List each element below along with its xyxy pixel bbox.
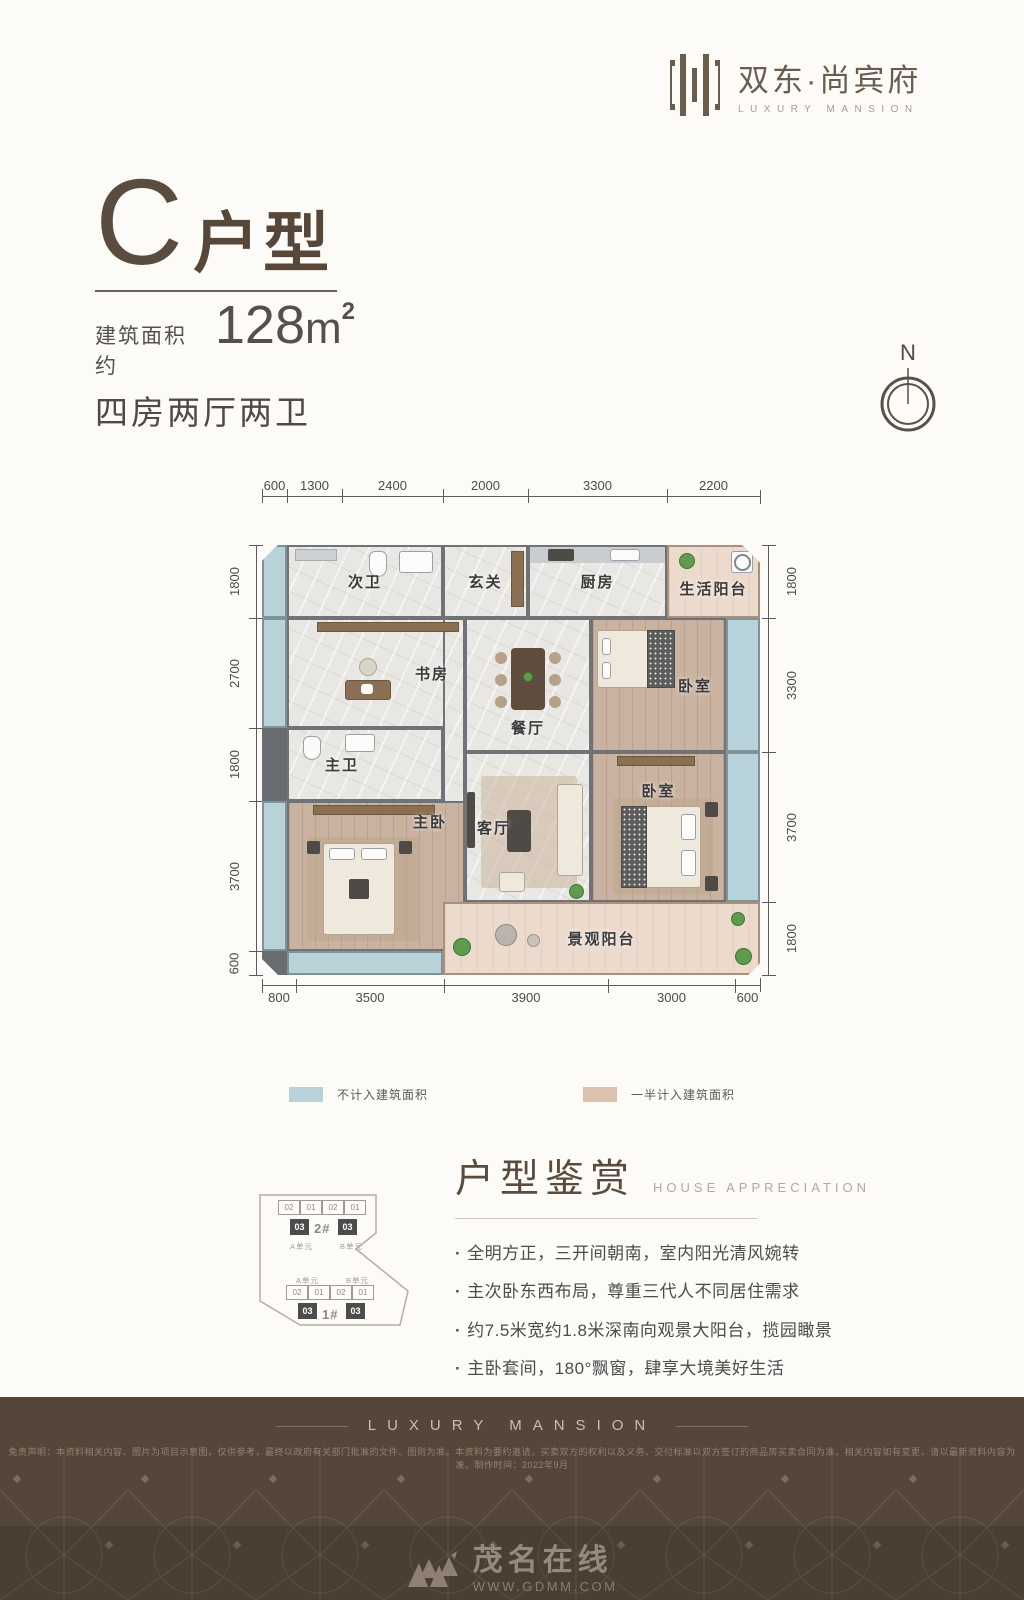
unit-title-block: C 户型 建筑面积约 128 m 2 四房两厅两卫: [95, 168, 355, 434]
unit-cell: 02: [330, 1285, 352, 1300]
site-key-plan: 02 01 02 01 03 03 2# A单元 B单元 A单元 B单元 02 …: [250, 1183, 438, 1335]
dim-segment: 3900: [444, 985, 608, 1007]
legend-label: 一半计入建筑面积: [631, 1086, 735, 1103]
dim-segment: 2000: [443, 476, 528, 497]
area-unit: m: [305, 304, 342, 354]
unit-cell: 01: [344, 1200, 366, 1215]
round-table-furniture: [495, 924, 517, 946]
room-foyer: 玄关: [443, 545, 528, 618]
brand-logo: 双东·尚宾府 LUXURY MANSION: [668, 52, 921, 118]
dim-segment: 3300: [769, 618, 813, 752]
washer-furniture: [731, 551, 753, 573]
dim-segment: 2200: [667, 476, 760, 497]
watermark-site-name: 茂名在线: [473, 1544, 618, 1577]
unit-core-cell: 03: [298, 1303, 317, 1319]
room-second-bath: 次卫: [287, 545, 443, 618]
room-living: 客厅: [465, 752, 591, 902]
room-label: 生活阳台: [679, 578, 747, 599]
room-bedroom-north: 卧室: [591, 618, 726, 752]
unit-cell: 02: [322, 1200, 344, 1215]
dim-value: 600: [264, 478, 286, 493]
room-label: 客厅: [477, 817, 511, 838]
dim-segment: 600: [735, 985, 760, 1007]
dim-segment: 1800: [769, 545, 813, 618]
chair-furniture: [549, 652, 561, 664]
tv-cabinet-furniture: [467, 792, 475, 848]
paper-furniture: [361, 684, 373, 694]
appreciation-bullet: 主次卧东西布局，尊重三代人不同居住需求: [455, 1273, 895, 1311]
dim-value: 1300: [300, 478, 329, 493]
legend: 不计入建筑面积 一半计入建筑面积: [0, 1086, 1024, 1103]
unit-cell: 01: [300, 1200, 322, 1215]
dimensions-top: 600 1300 2400 2000 3300 2200: [262, 476, 760, 497]
house-appreciation-section: 户型鉴赏 HOUSE APPRECIATION 全明方正，三开间朝南，室内阳光清…: [455, 1148, 895, 1388]
bed-throw-furniture: [647, 630, 675, 688]
legend-swatch-blue: [289, 1087, 323, 1102]
plant-furniture: [679, 553, 695, 569]
area-row: 建筑面积约 128 m 2: [95, 298, 355, 380]
pillow-furniture: [329, 848, 355, 860]
unit-core-cell: 03: [338, 1219, 357, 1235]
unit-core-cell: 03: [346, 1303, 365, 1319]
dim-segment: 2400: [342, 476, 443, 497]
dim-segment: 800: [262, 985, 296, 1007]
title-divider: [95, 290, 337, 292]
brand-tagline: LUXURY MANSION: [738, 104, 921, 115]
room-label: 主卫: [325, 754, 359, 775]
kitchen-sink-furniture: [610, 549, 640, 561]
unit-core-cell: 03: [290, 1219, 309, 1235]
unit-letter: C: [95, 168, 183, 278]
dim-segment: 1800: [212, 545, 256, 618]
building-1-units-row: 02 01 02 01: [286, 1285, 374, 1300]
appreciation-subtitle: HOUSE APPRECIATION: [653, 1180, 870, 1195]
unit-cell: 02: [278, 1200, 300, 1215]
appreciation-bullets: 全明方正，三开间朝南，室内阳光清风婉转 主次卧东西布局，尊重三代人不同居住需求 …: [455, 1235, 895, 1388]
dim-segment: 3300: [528, 476, 667, 497]
room-study: 书房: [287, 618, 465, 728]
armchair-furniture: [499, 872, 525, 892]
chair-furniture: [495, 652, 507, 664]
pillow-furniture: [602, 638, 611, 655]
dim-segment: 3700: [212, 801, 256, 951]
dim-segment: 2700: [212, 618, 256, 728]
appreciation-title-row: 户型鉴赏 HOUSE APPRECIATION: [455, 1148, 895, 1204]
building-2-label: 2#: [314, 1221, 330, 1236]
floor-plan: 次卫 玄关 厨房 生活阳台 书房: [262, 545, 760, 975]
room-master-bath: 主卫: [287, 728, 443, 801]
compass-icon: [874, 366, 942, 434]
dim-value: 3300: [583, 478, 612, 493]
room-label: 景观阳台: [567, 928, 635, 949]
wardrobe-furniture: [617, 756, 695, 766]
vanity-counter-furniture: [295, 549, 337, 561]
room-master-bedroom: 主卧: [287, 801, 465, 951]
room-label: 玄关: [468, 571, 502, 592]
dim-value: 2400: [378, 478, 407, 493]
brand-name: 双东·尚宾府: [738, 55, 921, 100]
legend-item-half-counted: 一半计入建筑面积: [583, 1086, 735, 1103]
dimensions-left: 1800 2700 1800 3700 600: [212, 545, 257, 975]
brand-logo-mark-icon: [668, 52, 722, 118]
bay-window-master-bottom: [287, 951, 443, 975]
bookshelf-furniture: [317, 622, 459, 632]
compass-north-label: N: [874, 340, 942, 366]
appreciation-bullet: 约7.5米宽约1.8米深南向观景大阳台，揽园瞰景: [455, 1312, 895, 1350]
footer-disclaimer: 免责声明：本资料相关内容、图片为项目示意图，仅供参考，最终以政府有关部门批准的文…: [0, 1445, 1024, 1471]
pillow-furniture: [681, 814, 696, 840]
bay-window-bedroom-north: [726, 618, 760, 752]
appreciation-title: 户型鉴赏: [455, 1148, 635, 1204]
dimensions-right: 1800 3300 3700 1800: [768, 545, 813, 975]
area-label: 建筑面积约: [95, 320, 205, 380]
room-view-balcony: 景观阳台: [443, 902, 760, 975]
stove-furniture: [548, 549, 574, 561]
pillow-furniture: [681, 850, 696, 876]
dim-segment: 600: [262, 476, 287, 497]
unit-type-suffix: 户型: [193, 209, 333, 278]
building-1-label: 1#: [322, 1307, 338, 1322]
sink-furniture: [345, 734, 375, 752]
dim-value: 3700: [226, 862, 241, 891]
room-label: 餐厅: [511, 717, 545, 738]
watermark-site-url: WWW.GDMM.COM: [473, 1579, 618, 1594]
chair-furniture: [495, 674, 507, 686]
nightstand-furniture: [307, 841, 320, 854]
dim-value: 600: [737, 990, 759, 1005]
dim-segment: 3000: [608, 985, 735, 1007]
dim-value: 2200: [699, 478, 728, 493]
building-2-units-row: 02 01 02 01: [278, 1200, 366, 1215]
room-service-balcony: 生活阳台: [667, 545, 760, 618]
bay-window-master: [262, 801, 287, 951]
plant-furniture: [569, 884, 584, 899]
footer: LUXURY MANSION 免责声明：本资料相关内容、图片为项目示意图，仅供参…: [0, 1397, 1024, 1600]
room-label: 次卫: [348, 571, 382, 592]
watermark: 茂名在线 WWW.GDMM.COM: [0, 1544, 1024, 1594]
dim-value: 2700: [226, 659, 241, 688]
room-label: 主卧: [413, 811, 447, 832]
floorplan-poster: 双东·尚宾府 LUXURY MANSION C 户型 建筑面积约 128 m 2…: [0, 0, 1024, 1600]
unit-cell: 02: [286, 1285, 308, 1300]
bay-window-study: [262, 618, 287, 728]
watermark-logo-icon: [407, 1547, 459, 1591]
dim-segment: 600: [212, 951, 256, 975]
appreciation-bullet: 主卧套间，180°飘窗，肆享大境美好生活: [455, 1350, 895, 1388]
dim-value: 3300: [783, 671, 798, 700]
room-bedroom-east: 卧室: [591, 752, 726, 902]
dim-value: 3700: [783, 813, 798, 842]
sofa-furniture: [557, 784, 583, 876]
unit-cell: 01: [308, 1285, 330, 1300]
legend-item-not-counted: 不计入建筑面积: [289, 1086, 428, 1103]
chair-furniture: [359, 658, 377, 676]
area-exponent: 2: [342, 298, 355, 326]
dimensions-bottom: 800 3500 3900 3000 600: [262, 985, 760, 1007]
plant-furniture: [731, 912, 745, 926]
dim-value: 2000: [471, 478, 500, 493]
dim-value: 1800: [226, 750, 241, 779]
nightstand-furniture: [399, 841, 412, 854]
dim-value: 1800: [226, 567, 241, 596]
appreciation-divider: [455, 1218, 757, 1219]
plant-furniture: [523, 672, 533, 682]
dim-segment: 1800: [212, 728, 256, 801]
dim-value: 1800: [783, 924, 798, 953]
dim-value: 1800: [783, 567, 798, 596]
room-kitchen: 厨房: [528, 545, 667, 618]
room-count-text: 四房两厅两卫: [95, 386, 355, 434]
room-dining: 餐厅: [465, 618, 591, 752]
area-number: 128: [215, 298, 305, 352]
pillow-furniture: [361, 848, 387, 860]
bay-window-shower: [262, 545, 287, 618]
unit-b-label: B单元: [340, 1241, 363, 1252]
chair-furniture: [527, 934, 540, 947]
bed-throw-furniture: [621, 806, 647, 888]
bed-throw-furniture: [349, 879, 369, 899]
dim-value: 3500: [356, 990, 385, 1005]
unit-a-label: A单元: [290, 1241, 313, 1252]
legend-swatch-tan: [583, 1087, 617, 1102]
room-label: 厨房: [580, 571, 614, 592]
dim-value: 600: [226, 952, 241, 974]
room-label: 卧室: [641, 780, 675, 801]
dim-value: 3900: [512, 990, 541, 1005]
plant-furniture: [735, 948, 752, 965]
chair-furniture: [495, 696, 507, 708]
bay-window-bedroom-east: [726, 752, 760, 902]
appreciation-bullet: 全明方正，三开间朝南，室内阳光清风婉转: [455, 1235, 895, 1273]
compass: N: [874, 340, 942, 439]
chair-furniture: [549, 674, 561, 686]
dim-segment: 1300: [287, 476, 342, 497]
toilet-furniture: [303, 736, 321, 760]
dim-segment: 1800: [769, 902, 813, 975]
unit-title: C 户型: [95, 168, 355, 278]
nightstand-furniture: [705, 802, 718, 817]
chair-furniture: [549, 696, 561, 708]
dim-value: 3000: [657, 990, 686, 1005]
footer-banner: LUXURY MANSION: [0, 1417, 1024, 1434]
pillow-furniture: [602, 662, 611, 679]
cabinet-furniture: [511, 551, 524, 607]
dim-segment: 3700: [769, 752, 813, 902]
room-label: 卧室: [678, 675, 712, 696]
plant-furniture: [453, 938, 471, 956]
sink-furniture: [399, 551, 433, 573]
dim-segment: 3500: [296, 985, 444, 1007]
unit-cell: 01: [352, 1285, 374, 1300]
nightstand-furniture: [705, 876, 718, 891]
legend-label: 不计入建筑面积: [337, 1086, 428, 1103]
room-label: 书房: [415, 663, 449, 684]
dim-value: 800: [268, 990, 290, 1005]
